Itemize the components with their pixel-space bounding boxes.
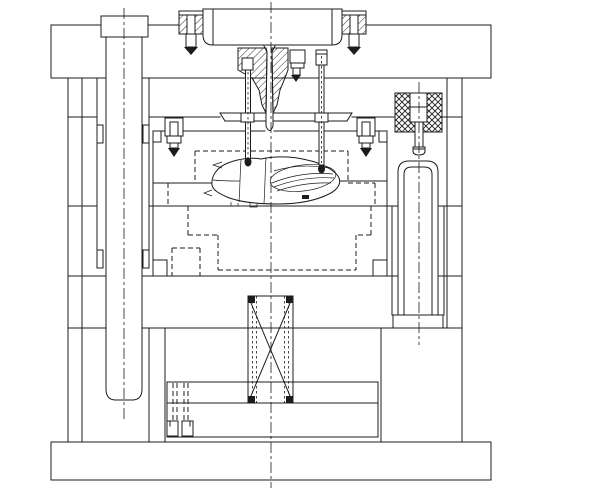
screw-washer: [291, 63, 304, 68]
screw-shank: [362, 143, 370, 148]
core-pin-right: [315, 50, 328, 165]
spring-cross: [248, 296, 293, 403]
screw-head: [165, 118, 183, 136]
screw-head-hatch-r: [195, 15, 203, 34]
insert-seat-band: [220, 113, 352, 121]
plate-screw-right: [357, 118, 375, 157]
ejector-plate-screw: [167, 421, 193, 436]
screw-tip: [347, 47, 361, 55]
screw-washer: [167, 136, 181, 143]
puller-channel: [410, 93, 427, 107]
pillar-head: [101, 16, 148, 37]
screw-tip: [360, 148, 372, 157]
screw-head-hatch-l: [179, 15, 187, 34]
side-pocket-hidden: [172, 248, 200, 276]
pin-collar: [241, 113, 254, 122]
screw-head: [290, 50, 305, 63]
screw-shank: [349, 34, 359, 47]
plate-screw-left: [165, 118, 183, 157]
guide-pillar-left: [97, 16, 149, 400]
sprue-side-screw: [290, 50, 305, 82]
ring-screw-left: [179, 11, 203, 55]
pin-head: [242, 58, 253, 70]
screw-head-left-half: [167, 421, 178, 436]
screw-shank: [293, 68, 300, 75]
screw-shank: [186, 34, 196, 47]
screw-shank: [170, 143, 178, 148]
screw-washer: [359, 136, 373, 143]
screw-tip: [184, 47, 198, 55]
mold-assembly-drawing: Injection mould assembly - sectional vie…: [0, 0, 600, 492]
ejector-guide-pillar: [392, 161, 444, 328]
part-detail-mark: [302, 195, 309, 199]
return-spring: [248, 296, 293, 403]
screw-tip: [168, 148, 180, 157]
screw-head-hatch-l: [342, 15, 350, 34]
screw-head-hatch-r: [358, 15, 366, 34]
ring-screw-right: [342, 11, 366, 55]
screw-head-right-half: [182, 421, 193, 436]
drawing-canvas: Injection mould assembly - sectional vie…: [0, 0, 600, 492]
pin-tip-mark-right: [318, 165, 325, 174]
pin-tip-mark-left: [245, 158, 252, 167]
puller-pin-head: [410, 107, 427, 122]
spring-loaded-puller: [395, 93, 442, 155]
sprue-bushing-right-half: [272, 48, 288, 113]
core-insert-hidden: [188, 206, 371, 270]
ejector-plates: [167, 382, 378, 437]
ejector-screw-hidden: [173, 383, 188, 420]
locating-ring: [203, 9, 342, 45]
screw-head: [357, 118, 375, 136]
pillar-flange: [393, 315, 443, 328]
